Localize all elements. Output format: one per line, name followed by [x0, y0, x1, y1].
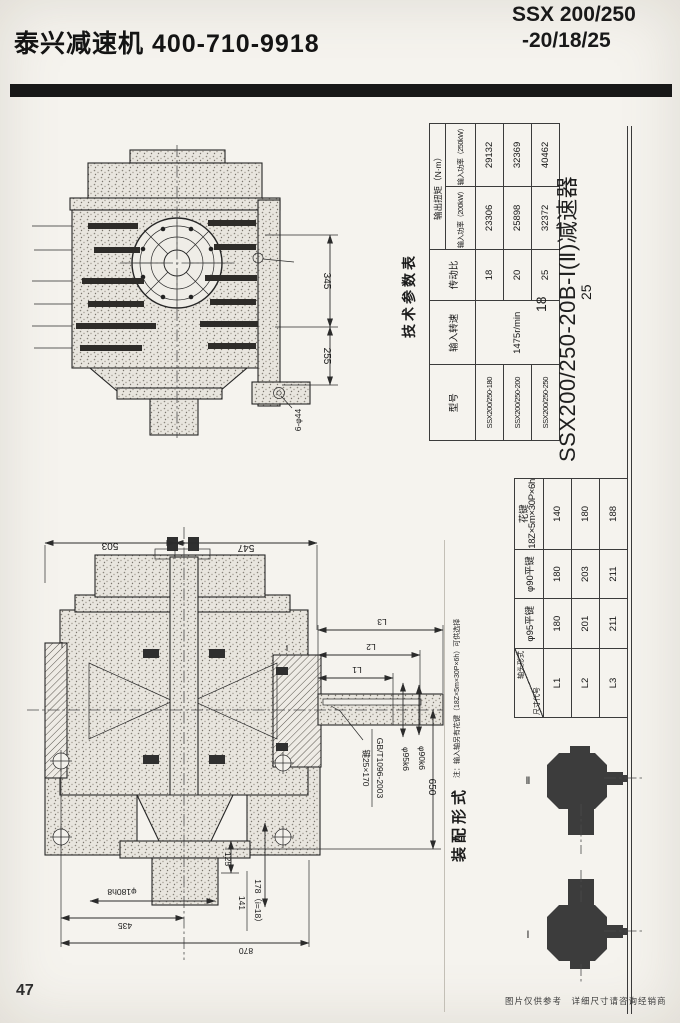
cell-torque250-2: 32369 [504, 124, 532, 187]
dim-label-547: 547 [237, 542, 254, 553]
col-header-power250: 输入功率（250kW） [446, 124, 476, 187]
key-standard-label: GB/T1096-2003 [375, 738, 385, 799]
dim-label-345: 345 [321, 273, 332, 290]
cell-L1-v3: 140 [544, 479, 572, 550]
key-spec-label: 键25×170 [361, 749, 371, 786]
row-code-L2: L2 [572, 649, 600, 718]
col-header-spline: 花键 18Z×5m×30P×6h [515, 479, 544, 550]
dim-label-phi90k6: φ90k6 [417, 746, 427, 770]
catalog-page: 泰兴减速机 400-710-9918 SSX 200/250 -20/18/25 [0, 0, 680, 1023]
section-mark-right: Ⅰ [286, 643, 289, 653]
dim-label-255: 255 [321, 348, 332, 365]
header-divider-bar [10, 84, 672, 97]
dim-label-503: 503 [101, 540, 118, 551]
dim-label-435: 435 [118, 921, 132, 931]
dims-table-wrapper: 轴头形式 尺寸代号 φ95平键 φ90平键 花键 18Z×5m×30P×6h L… [514, 478, 628, 718]
cell-torque250-1: 29132 [476, 124, 504, 187]
cell-L2-v1: 201 [572, 599, 600, 649]
diagonal-header-cell: 轴头形式 尺寸代号 [515, 649, 543, 717]
col-header-ratio: 传动比 [430, 249, 476, 300]
row-code-L1: L1 [544, 649, 572, 718]
assembly-label-II: Ⅱ [526, 776, 531, 787]
cell-torque200-1: 23306 [476, 186, 504, 249]
ratio-alt-18: 18 [533, 296, 549, 312]
cell-L1-v2: 180 [544, 549, 572, 599]
frame-light-rule [444, 540, 445, 1012]
table-row: L2 201 203 180 [572, 479, 600, 718]
spline-spec: 18Z×5m×30P×6h [529, 479, 537, 549]
dim-label-phi95k6: φ95k6 [401, 747, 411, 771]
company-phone-header: 泰兴减速机 400-710-9918 [14, 24, 320, 60]
col-header-model: 型号 [430, 365, 476, 441]
page-number: 47 [16, 982, 34, 1000]
disclaimer-text: 图片仅供参考 详细尺寸请咨询经销商 [505, 995, 667, 1007]
spline-option-note: 注：输入轴另有花键（18Z×5m×30P×6h）可供选择 [452, 578, 462, 778]
dim-label-141: 141 [237, 896, 247, 910]
col-header-power200: 输入功率（200kW） [446, 186, 476, 249]
cell-L1-v1: 180 [544, 599, 572, 649]
col-header-speed: 输入转速 [430, 301, 476, 365]
dim-label-L3: L3 [377, 617, 387, 627]
cell-model-1: SSX200/250-180 [476, 365, 504, 441]
diag-header-size-code: 尺寸代号 [532, 687, 542, 715]
ratio-alt-25: 25 [578, 284, 594, 300]
frame-double-rule [627, 126, 632, 1014]
series-code-line1: SSX 200/250 [512, 2, 636, 28]
gearbox-section-view-drawing: 503 547 L1 L2 L3 650 125 [25, 515, 445, 965]
cell-torque200-2: 25898 [504, 186, 532, 249]
dim-label-L1: L1 [352, 665, 362, 675]
col-header-torque: 输出扭矩（N·m） [430, 124, 446, 250]
dimension-L1-L2-L3: L1 L2 L3 [318, 617, 443, 697]
dim-label-870: 870 [239, 946, 253, 956]
diag-header-shaft-type: 轴头形式 [516, 651, 526, 679]
col-header-phi90-key: φ90平键 [515, 549, 544, 599]
dim-label-6xphi44: 6-φ44 [293, 408, 303, 431]
cell-L3-v2: 211 [600, 549, 628, 599]
cell-ratio-2: 20 [504, 249, 532, 300]
dims-table: 轴头形式 尺寸代号 φ95平键 φ90平键 花键 18Z×5m×30P×6h L… [514, 478, 628, 718]
table-row: L1 180 180 140 [544, 479, 572, 718]
series-code-line2: -20/18/25 [512, 28, 636, 54]
model-designation-text: SSX200/250-20B-Ⅰ(Ⅱ)减速器 [550, 176, 582, 462]
params-table-title: 技术参数表 [399, 226, 419, 338]
cell-ratio-1: 18 [476, 249, 504, 300]
model-designation: 18 SSX200/250-20B-Ⅰ(Ⅱ)减速器 25 [536, 132, 594, 462]
dim-label-L2: L2 [366, 642, 376, 652]
cell-L3-v3: 188 [600, 479, 628, 550]
table-row: L3 211 211 188 [600, 479, 628, 718]
section-mark-left: Ⅰ [61, 640, 64, 650]
assembly-label-I: Ⅰ [527, 930, 530, 941]
dim-label-125: 125 [223, 852, 233, 866]
table-row: SSX200/250-200 20 25898 32369 [504, 124, 532, 441]
cell-L3-v1: 211 [600, 599, 628, 649]
cell-model-2: SSX200/250-200 [504, 365, 532, 441]
cell-L2-v3: 180 [572, 479, 600, 550]
output-stub [120, 795, 250, 905]
col-header-phi95-key: φ95平键 [515, 599, 544, 649]
dim-label-650: 650 [426, 779, 437, 796]
dim-label-178: 178（i=18） [253, 879, 263, 927]
series-code-header: SSX 200/250 -20/18/25 [512, 2, 636, 54]
cell-L2-v2: 203 [572, 549, 600, 599]
gearbox-top-view-drawing: 345 255 6-φ44 [30, 120, 390, 465]
assembly-form-title: 装配形式 [448, 772, 469, 862]
row-code-L3: L3 [600, 649, 628, 718]
dim-label-phi180h8: φ180h8 [107, 887, 136, 897]
table-row: SSX200/250-180 1475r/min 18 23306 29132 [476, 124, 504, 441]
shaft-key [323, 699, 421, 705]
